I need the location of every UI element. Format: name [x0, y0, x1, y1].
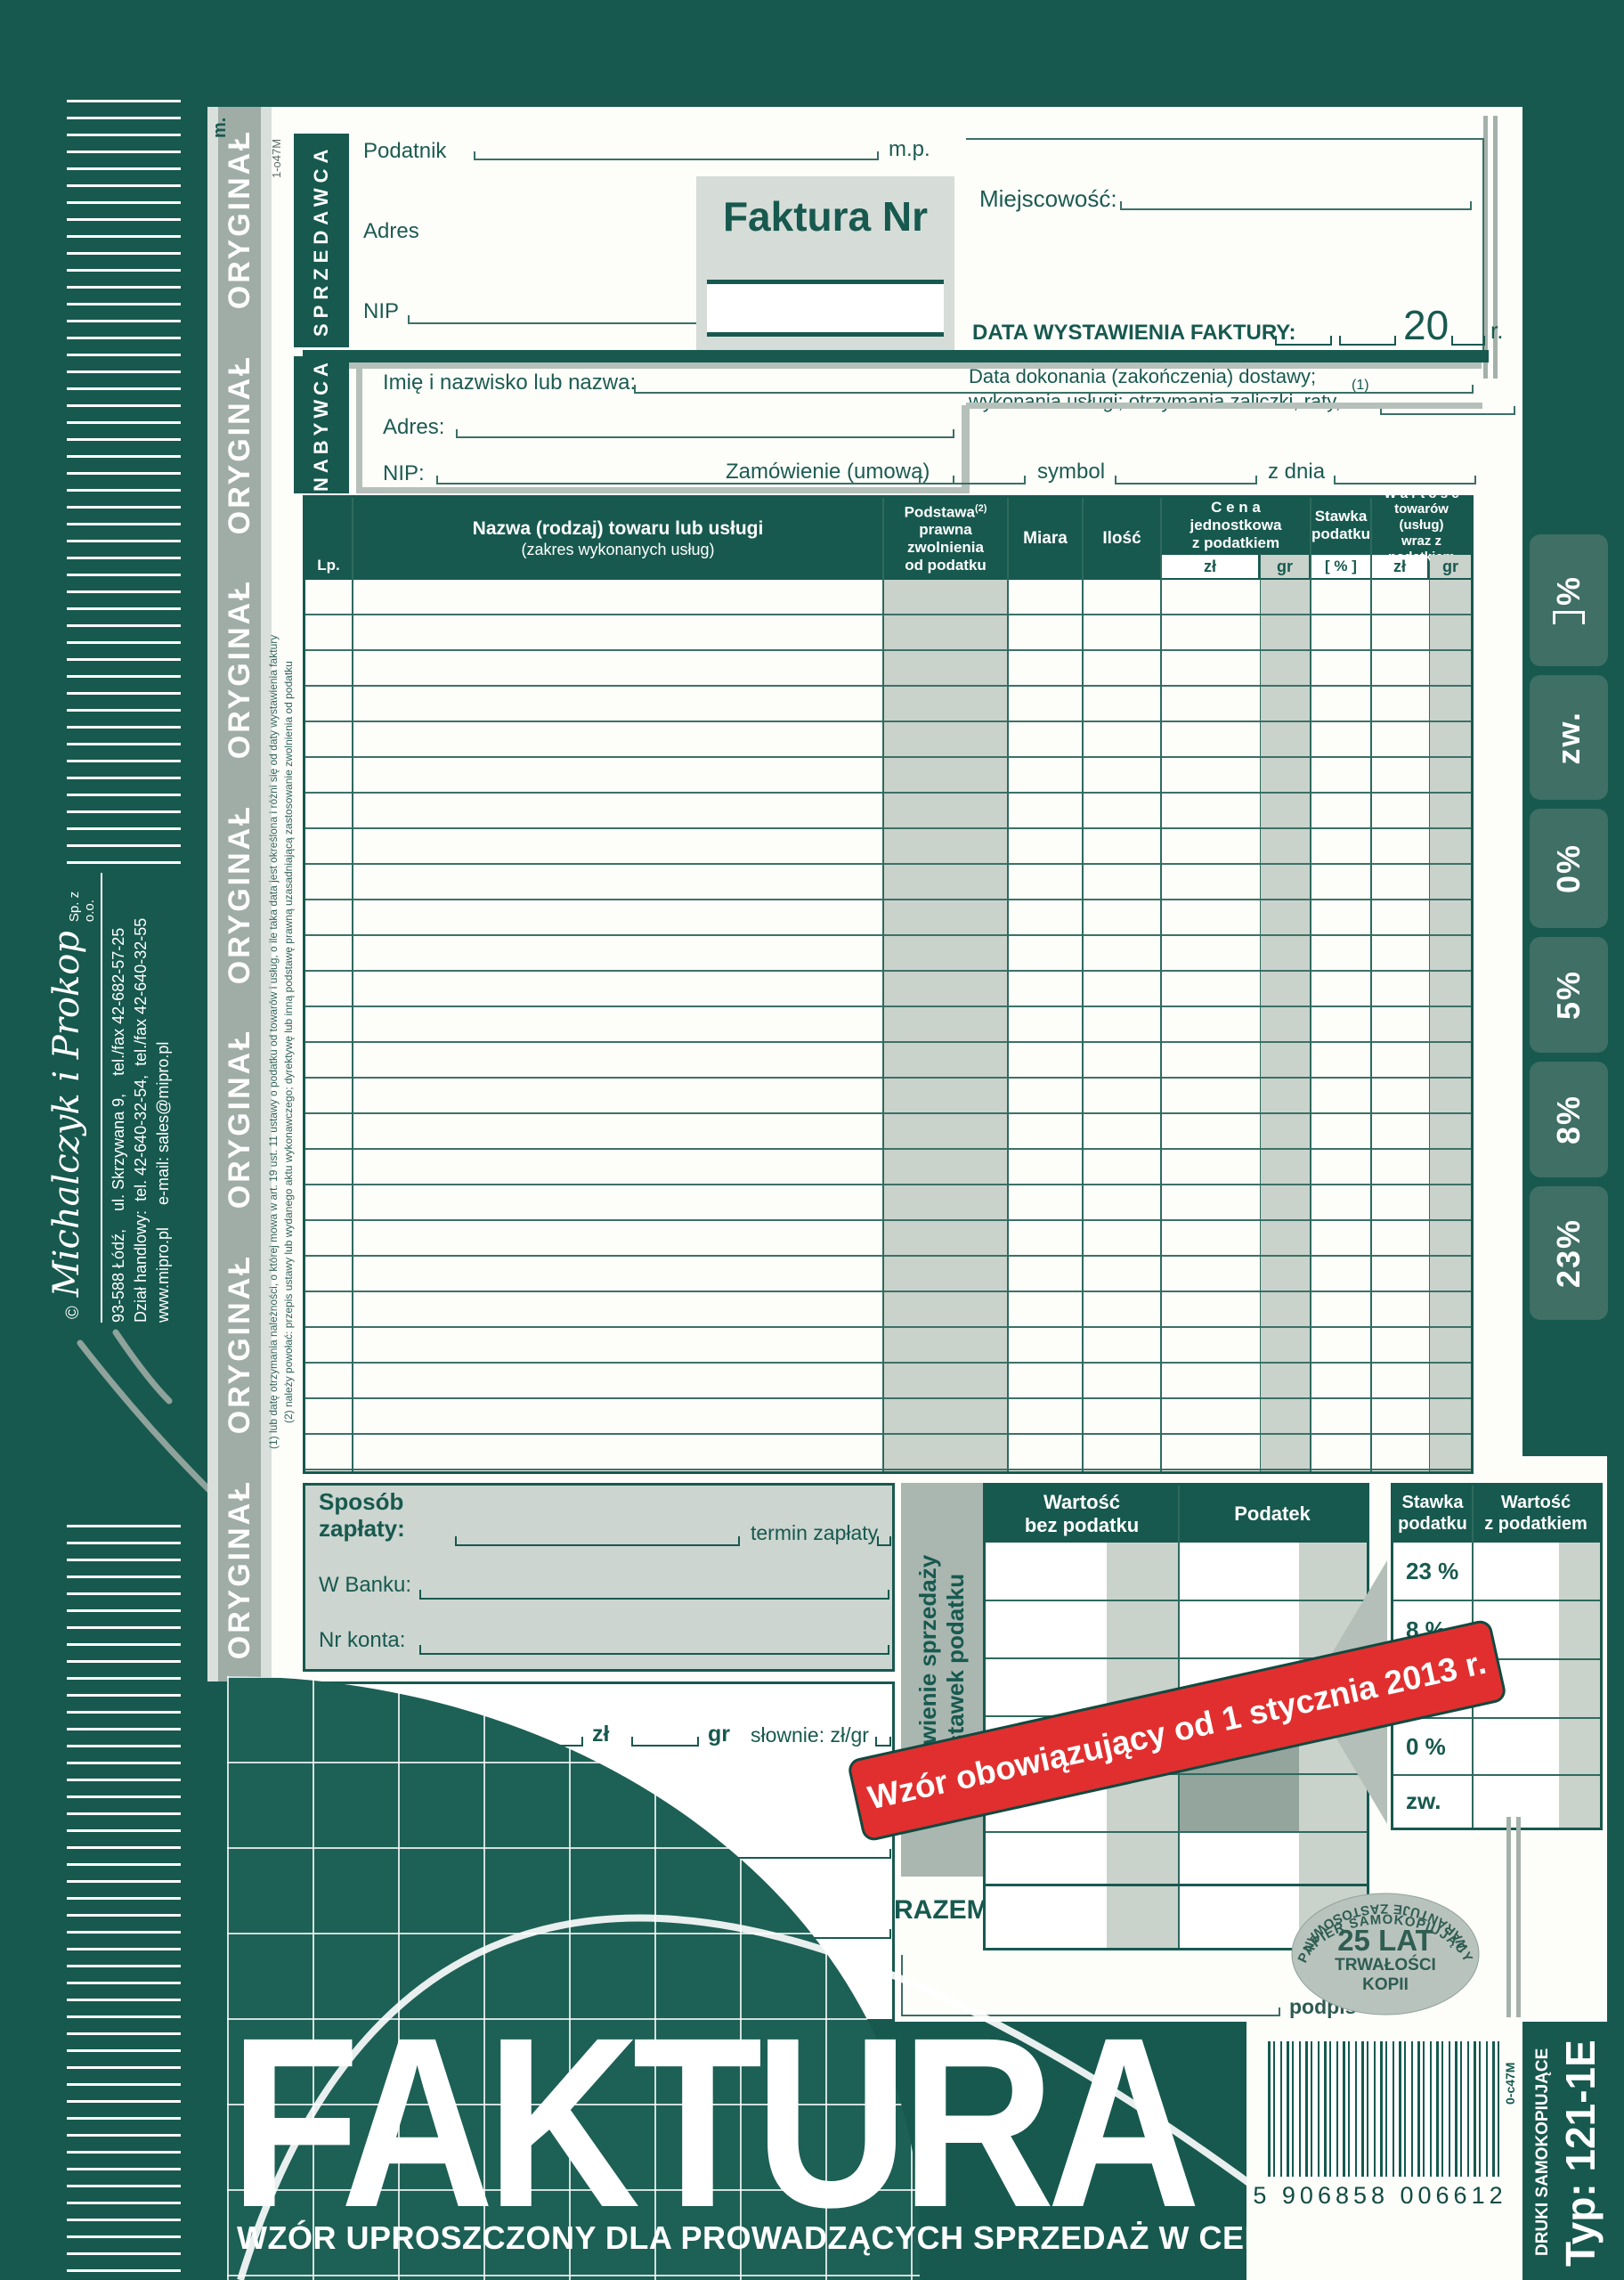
- items-table: Lp. Nazwa (rodzaj) towaru lub usługi (za…: [303, 495, 1474, 1474]
- company-sidebar: © Michalczyk i Prokop Sp. z o.o. 93-588 …: [46, 873, 207, 1323]
- print-code-top: 1-o47M: [270, 123, 283, 194]
- payment-term-field[interactable]: [877, 1521, 891, 1546]
- summary-col-net: Wartośćbez podatku: [986, 1486, 1178, 1543]
- copy-label: ORYGINAŁ: [223, 1479, 257, 1659]
- city-label: Miejscowość:: [979, 185, 1117, 213]
- company-name: Michalczyk i Prokop: [46, 931, 87, 1297]
- barcode-print-code: 0-c47M: [1503, 2034, 1517, 2132]
- invoice-number-field[interactable]: [707, 280, 944, 337]
- company-address: 93-588 Łódź, ul. Skrzywana 9, tel./fax 4…: [110, 873, 128, 1323]
- invoice-number-box: Faktura Nr: [696, 176, 954, 351]
- order-date-label: z dnia: [1268, 460, 1325, 484]
- payment-bank-field[interactable]: [419, 1575, 889, 1600]
- badge-bottom: KOPII: [1362, 1975, 1409, 1994]
- col-lp-header: Lp.: [305, 498, 352, 580]
- sub-zl: zł: [1162, 555, 1258, 578]
- col-sep: [352, 498, 353, 1471]
- order-field[interactable]: [919, 458, 1026, 484]
- col-rate-header: Stawka podatku: [1311, 498, 1370, 553]
- col-sep: [1007, 498, 1009, 1471]
- rate-row-23[interactable]: 23 %: [1393, 1543, 1600, 1601]
- buyer-name-field[interactable]: [634, 367, 1474, 394]
- payment-method-label: Sposóbzapłaty:: [319, 1489, 405, 1543]
- seller-nip-label: NIP: [363, 299, 399, 324]
- company-sales: Dział handlowy: tel. 42-640-32-54, tel./…: [132, 873, 150, 1323]
- seller-stamp-label: m.p.: [889, 137, 930, 162]
- stripes-bottom-left: [67, 1525, 181, 2273]
- footnote-1: (1) lub datę otrzymania należności, o kt…: [267, 583, 280, 1501]
- badge-mid: TRWAŁOŚCI: [1335, 1955, 1436, 1975]
- rate-row-zw[interactable]: zw.: [1393, 1774, 1600, 1828]
- items-rows[interactable]: [305, 580, 1471, 1471]
- footnote-2: (2) należy powołać: przepis ustawy lub w…: [282, 583, 295, 1501]
- col-unit-header: Miara: [1009, 498, 1082, 580]
- issue-date-label: DATA WYSTAWIENIA FAKTURY:: [972, 321, 1296, 346]
- summary-col-gross: Wartośćz podatkiem: [1472, 1486, 1600, 1543]
- order-symbol-field[interactable]: [1115, 458, 1257, 484]
- buyer-address-label: Adres:: [383, 415, 444, 440]
- col-value-header: W a r t o ś ć towarów (usług) wraz z pod…: [1372, 498, 1471, 553]
- copy-band-top-code: m.: [210, 112, 231, 142]
- issue-year-suffix: r.: [1490, 317, 1503, 345]
- page-edge-line: [1516, 1817, 1521, 2017]
- buyer-name-label: Imię i nazwisko lub nazwa:: [383, 370, 636, 395]
- barcode-box: 5 906858 006612 0-c47M: [1246, 2022, 1522, 2280]
- page-edge-line: [1506, 1817, 1511, 2017]
- col-sep: [1370, 498, 1372, 1471]
- seller-address-label: Adres: [363, 219, 419, 244]
- issue-year-field[interactable]: [1451, 321, 1485, 346]
- buyer-nip-label: NIP:: [383, 461, 425, 486]
- buyer-label-box: NABYWCA: [294, 356, 349, 493]
- order-date-field[interactable]: [1334, 458, 1476, 484]
- tab-rate-5[interactable]: 5%: [1530, 937, 1608, 1053]
- col-name-header: Nazwa (rodzaj) towaru lub usługi (zakres…: [353, 498, 882, 580]
- col-basis-header: Podstawa(2) prawna zwolnienia od podatku: [884, 498, 1007, 580]
- product-type-label: Typ: 121-1E: [1556, 2031, 1604, 2276]
- badge-years: 25 LAT: [1337, 1924, 1433, 1957]
- col-sep: [1160, 498, 1162, 1471]
- company-web: www.mipro.pl e-mail: sales@mipro.pl: [154, 873, 173, 1323]
- copy-label: ORYGINAŁ: [223, 129, 257, 309]
- barcode-digits: 5 906858 006612: [1246, 2182, 1514, 2210]
- durability-badge: PAPIER SAMOKOPIUJĄCY GWARANTUJE ZASTOSOW…: [1289, 1892, 1482, 2016]
- col-sep: [1082, 498, 1084, 1471]
- footer-title: FAKTURA: [230, 2023, 1193, 2222]
- issue-day-field[interactable]: [1275, 321, 1332, 346]
- rate-row-0[interactable]: 0 %: [1393, 1719, 1600, 1776]
- seller-taxpayer-label: Podatnik: [363, 139, 446, 164]
- tab-rate-23[interactable]: 23%: [1530, 1186, 1608, 1320]
- seller-label-box: SPRZEDAWCA: [294, 134, 349, 347]
- buyer-frame: [356, 487, 969, 493]
- tab-rate-8[interactable]: 8%: [1530, 1062, 1608, 1177]
- issue-month-field[interactable]: [1339, 321, 1396, 346]
- copy-label: ORYGINAŁ: [223, 354, 257, 534]
- col-qty-header: Ilość: [1084, 498, 1160, 580]
- buyer-top-bar: [303, 350, 1489, 362]
- sub-zl: zł: [1372, 555, 1427, 578]
- invoice-form-sheet: © Michalczyk i Prokop Sp. z o.o. 93-588 …: [0, 0, 1624, 2280]
- invoice-number-title: Faktura Nr: [696, 192, 954, 240]
- payment-bank-label: W Banku:: [319, 1573, 411, 1598]
- issue-century: 20: [1403, 301, 1449, 349]
- copy-label: ORYGINAŁ: [223, 1029, 257, 1209]
- summary-col-rate: Stawkapodatku: [1393, 1486, 1472, 1543]
- col-price-header: C e n a jednostkowa z podatkiem: [1162, 498, 1310, 553]
- tab-rate-zw[interactable]: zw.: [1530, 675, 1608, 800]
- product-type-small: DRUKI SAMOKOPIUJĄCE: [1533, 2031, 1553, 2273]
- order-symbol-label: symbol: [1037, 460, 1105, 484]
- logo-swoosh-icon: [62, 1316, 223, 1503]
- buyer-label: NABYWCA: [294, 356, 349, 493]
- buyer-frame: [966, 403, 1482, 409]
- copy-label: ORYGINAŁ: [223, 1254, 257, 1434]
- payment-method-field[interactable]: [455, 1521, 740, 1546]
- seller-label: SPRZEDAWCA: [294, 134, 349, 347]
- stripes-top-left: [67, 100, 181, 875]
- seller-taxpayer-field[interactable]: [474, 134, 879, 160]
- col-sep: [1310, 498, 1311, 1471]
- col-sep: [882, 498, 884, 1471]
- city-field[interactable]: [1120, 183, 1472, 210]
- col-sep: [1429, 553, 1430, 1471]
- sub-gr: gr: [1261, 555, 1309, 578]
- barcode-bars: [1268, 2041, 1499, 2177]
- company-suffix: Sp. z o.o.: [67, 876, 97, 922]
- buyer-address-field[interactable]: [456, 411, 954, 438]
- col-sep: [1260, 553, 1261, 1471]
- copy-label: ORYGINAŁ: [223, 579, 257, 759]
- tab-rate-blank[interactable]: %: [1530, 534, 1608, 666]
- sub-gr: gr: [1430, 555, 1471, 578]
- payment-account-label: Nr konta:: [319, 1628, 405, 1653]
- copy-label: ORYGINAŁ: [223, 804, 257, 984]
- copy-band: ORYGINAŁ ORYGINAŁ ORYGINAŁ ORYGINAŁ ORYG…: [207, 107, 272, 1681]
- summary-col-tax: Podatek: [1178, 1486, 1367, 1543]
- sub-pct: [ % ]: [1311, 555, 1370, 578]
- payment-term-label: termin zapłaty: [751, 1521, 878, 1545]
- payment-box: Sposóbzapłaty: termin zapłaty W Banku: N…: [303, 1483, 895, 1672]
- tab-rate-0[interactable]: 0%: [1530, 809, 1608, 928]
- buyer-frame: [356, 362, 362, 493]
- payment-account-field[interactable]: [419, 1630, 889, 1655]
- order-label: Zamówienie (umowa): [726, 460, 930, 484]
